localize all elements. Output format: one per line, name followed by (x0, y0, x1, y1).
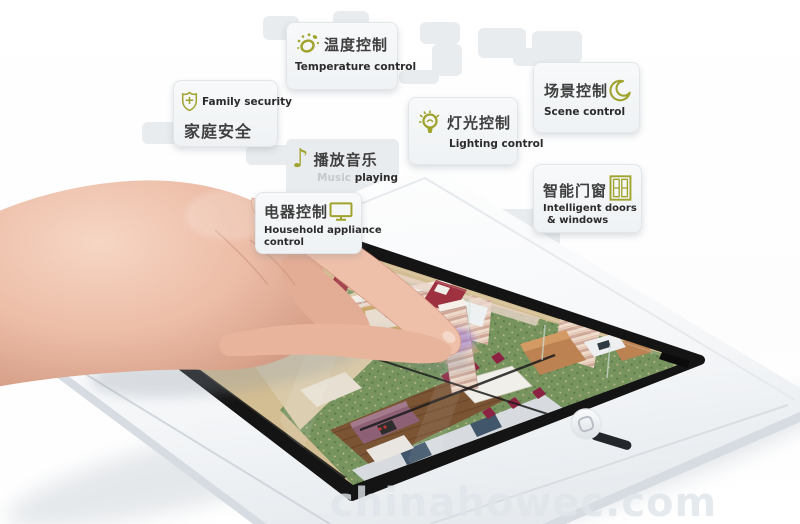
card-zh-label: 播放音乐 (314, 149, 378, 170)
card-en-line2: & windows (547, 215, 632, 227)
card-en-line2: control (264, 237, 353, 249)
home-button[interactable] (571, 409, 601, 439)
card-en-label: Temperature control (295, 61, 389, 73)
card-intelligent-doors[interactable]: 智能门窗 Intelligent doors & windows (533, 164, 642, 233)
watermark: chinahowec.com (330, 480, 717, 524)
card-zh-label: 场景控制 (544, 80, 608, 101)
moon-icon (608, 79, 631, 102)
music-note-icon: ♪ (292, 148, 309, 170)
card-en-label: Lighting control (449, 138, 509, 150)
card-en-line1: Intelligent doors (543, 203, 632, 215)
sun-icon (295, 32, 320, 57)
card-en-line1: Household appliance (264, 225, 353, 237)
smart-home-promo: chinahowec.com 温度控制 Temperature control (0, 0, 800, 524)
tablet-scene: chinahowec.com (0, 0, 800, 524)
card-zh-label: 智能门窗 (543, 180, 607, 201)
card-family-security[interactable]: Family security 家庭安全 (173, 80, 278, 147)
card-en-label: Scene control (544, 106, 629, 118)
card-zh-label: 家庭安全 (184, 118, 270, 142)
card-temperature-control[interactable]: 温度控制 Temperature control (286, 22, 398, 90)
door-icon (609, 175, 632, 201)
card-en-label: playing (355, 172, 398, 184)
card-appliance-control[interactable]: 电器控制 Household appliance control (255, 192, 362, 254)
card-en-label: Family security (202, 96, 292, 108)
card-lighting-control[interactable]: 灯光控制 Lighting control (408, 97, 518, 165)
card-music-playing[interactable]: ♪ 播放音乐 Music playing (292, 148, 398, 184)
monitor-icon (329, 202, 353, 222)
bulb-icon (417, 109, 443, 136)
card-zh-label: 电器控制 (264, 201, 328, 222)
card-zh-label: 灯光控制 (447, 112, 511, 133)
card-zh-label: 温度控制 (324, 34, 388, 55)
card-en-label-light: Music (317, 172, 351, 184)
shield-icon (181, 91, 198, 112)
card-scene-control[interactable]: 场景控制 Scene control (533, 62, 640, 133)
